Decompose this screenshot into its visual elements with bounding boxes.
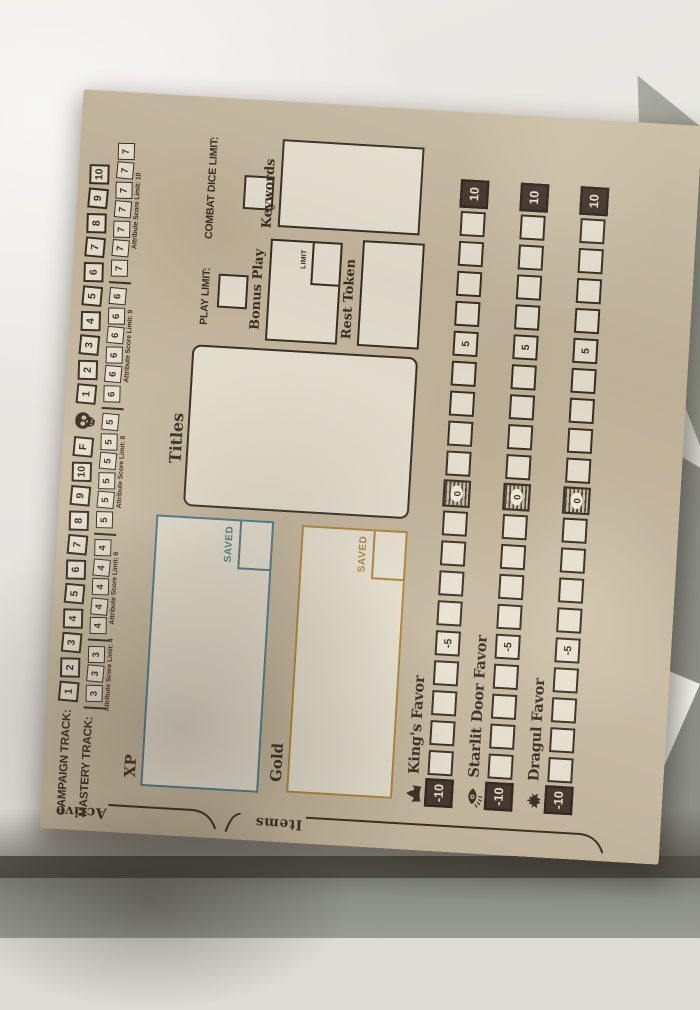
mastery-group-divider — [109, 281, 131, 284]
mastery-group-divider — [102, 407, 124, 410]
favor-box[interactable] — [498, 574, 524, 600]
favor-box[interactable]: -10 — [424, 778, 454, 808]
favor-box[interactable] — [429, 720, 455, 746]
titles-box[interactable] — [183, 344, 418, 519]
favor-box[interactable]: 10 — [459, 179, 489, 209]
favor-box[interactable] — [569, 398, 595, 424]
combat-dice-limit-label: COMBAT DICE LIMIT: — [203, 136, 221, 239]
favor-box[interactable] — [447, 420, 473, 446]
favor-box[interactable] — [489, 724, 515, 750]
favor-zero-badge: 0 — [570, 492, 583, 509]
favor-zero-badge: 0 — [510, 489, 523, 506]
bonus-play-heading: Bonus Play — [248, 248, 268, 330]
favor-box[interactable]: 5 — [572, 338, 598, 364]
tab-active[interactable]: Active — [46, 801, 107, 821]
favor-box[interactable]: 5 — [512, 334, 538, 360]
mastery-box[interactable]: 4 — [92, 559, 110, 577]
favor-box[interactable] — [570, 368, 596, 394]
favor-box[interactable] — [561, 517, 587, 543]
favor-box[interactable] — [433, 660, 459, 686]
favor-box[interactable] — [440, 540, 466, 566]
favor-box[interactable] — [560, 547, 586, 573]
favor-box[interactable] — [442, 510, 468, 536]
favor-box[interactable] — [431, 690, 457, 716]
mastery-box[interactable]: 4 — [90, 598, 108, 616]
favor-box[interactable] — [505, 454, 531, 480]
favor-zero-badge: 0 — [450, 485, 463, 502]
mastery-box[interactable]: 6 — [108, 308, 125, 325]
campaign-track-box[interactable]: 5 — [64, 583, 86, 605]
favor-box[interactable] — [553, 667, 579, 693]
favor-box[interactable] — [458, 241, 484, 267]
xp-box[interactable]: SAVED — [140, 514, 274, 793]
rest-token-box[interactable] — [357, 240, 425, 349]
mastery-group: 555555Attribute Score Limit: 8 — [95, 414, 119, 529]
mastery-box[interactable]: 7 — [116, 162, 134, 180]
gold-heading: Gold — [267, 742, 287, 782]
favor-box[interactable] — [567, 428, 593, 454]
eye-icon — [464, 786, 486, 808]
favor-box[interactable] — [438, 570, 464, 596]
favor-track-boxes: -10-50510 — [545, 188, 607, 813]
favor-box[interactable] — [556, 607, 582, 633]
favor-box[interactable] — [449, 391, 475, 417]
campaign-track-box[interactable]: 10 — [72, 462, 93, 483]
favor-box[interactable]: 0 — [562, 486, 591, 515]
campaign-track-box[interactable]: 6 — [83, 262, 104, 283]
favor-box[interactable] — [579, 218, 605, 244]
campaign-track-box[interactable]: 4 — [63, 608, 84, 629]
favor-box[interactable] — [502, 514, 528, 540]
attribute-score-limit-label: Attribute Score Limit: 8 — [116, 436, 127, 509]
favor-box[interactable]: 0 — [502, 483, 531, 512]
favor-box[interactable] — [454, 301, 480, 327]
favor-box[interactable] — [496, 604, 522, 630]
favor-box[interactable] — [487, 753, 513, 779]
favor-box[interactable] — [565, 458, 591, 484]
favor-box[interactable] — [500, 544, 526, 570]
mastery-box[interactable]: 6 — [103, 386, 120, 403]
mastery-group: 666666Attribute Score Limit: 9 — [102, 288, 126, 403]
favor-box[interactable] — [509, 394, 535, 420]
mastery-box[interactable]: 4 — [94, 540, 111, 557]
campaign-track-box[interactable]: 1 — [75, 384, 97, 406]
mastery-group-divider — [88, 639, 110, 642]
favor-box[interactable]: 10 — [579, 186, 609, 216]
favor-box[interactable] — [574, 308, 600, 334]
campaign-track-box[interactable]: 3 — [78, 335, 100, 357]
attribute-score-limit-label: Attribute Score Limit: 10 — [131, 172, 143, 249]
mastery-box[interactable]: 3 — [88, 646, 105, 663]
campaign-track-box[interactable]: F — [72, 436, 94, 458]
favor-track-label: Dragul Favor — [525, 678, 548, 782]
mastery-box[interactable]: 6 — [106, 327, 124, 345]
attribute-score-limit-label: Attribute Score Limit: 4 — [104, 638, 115, 711]
campaign-track-box[interactable]: 6 — [66, 559, 87, 580]
titles-heading: Titles — [165, 412, 187, 464]
attribute-score-limit-label: Attribute Score Limit: 9 — [123, 310, 134, 383]
gold-saved-box[interactable] — [371, 529, 408, 581]
favor-box[interactable]: -5 — [494, 634, 520, 660]
mastery-box[interactable]: 3 — [85, 685, 102, 702]
favor-box[interactable]: 0 — [442, 479, 471, 508]
mastery-box[interactable]: 3 — [86, 665, 104, 683]
mastery-box[interactable]: 6 — [106, 347, 123, 364]
favor-box[interactable] — [549, 727, 575, 753]
mastery-box[interactable]: 5 — [101, 414, 119, 432]
favor-track-label: King's Favor — [405, 675, 428, 775]
favor-track-label: Starlit Door Favor — [465, 635, 490, 778]
gold-box[interactable]: SAVED — [286, 525, 408, 799]
mastery-box[interactable]: 7 — [111, 260, 128, 277]
favor-box[interactable] — [514, 304, 540, 330]
campaign-track-box[interactable]: 2 — [78, 360, 99, 381]
mastery-box[interactable]: 5 — [96, 511, 113, 528]
bonus-play-limit-box[interactable] — [310, 241, 343, 287]
mastery-box[interactable]: 7 — [115, 182, 132, 199]
favor-box[interactable] — [491, 694, 517, 720]
campaign-track-box[interactable]: 1 — [58, 681, 80, 703]
favor-box[interactable] — [451, 361, 477, 387]
campaign-track-box[interactable]: 8 — [69, 510, 90, 531]
campaign-track-box[interactable]: 7 — [67, 534, 89, 556]
favor-box[interactable]: 5 — [452, 331, 478, 357]
mastery-box[interactable]: 6 — [108, 288, 126, 306]
mastery-box[interactable]: 7 — [114, 201, 132, 219]
gold-saved-label: SAVED — [356, 535, 369, 572]
mastery-box[interactable]: 7 — [113, 221, 130, 238]
favor-box[interactable] — [507, 424, 533, 450]
favor-box[interactable]: -5 — [435, 630, 461, 656]
bonus-play-limit-label: LIMIT — [300, 249, 308, 269]
favor-box[interactable]: -10 — [544, 785, 574, 815]
favor-box[interactable] — [519, 214, 545, 240]
favor-box[interactable]: 10 — [519, 183, 549, 213]
favor-box[interactable] — [456, 271, 482, 297]
favor-box[interactable]: -5 — [554, 637, 580, 663]
campaign-track-label: CAMPAIGN TRACK: — [55, 709, 73, 816]
play-limit-label: PLAY LIMIT: — [198, 267, 213, 325]
mastery-group: 7777777Attribute Score Limit: 10 — [109, 143, 134, 277]
play-limit-box[interactable] — [217, 274, 249, 310]
favor-box[interactable] — [547, 757, 573, 783]
mastery-box[interactable]: 5 — [98, 473, 115, 490]
campaign-track-box[interactable]: 8 — [86, 213, 107, 234]
xp-saved-label: SAVED — [223, 525, 236, 562]
campaign-track-box[interactable]: 2 — [60, 657, 81, 678]
favor-box[interactable] — [427, 750, 453, 776]
rest-token-heading: Rest Token — [339, 258, 359, 339]
mastery-box[interactable]: 5 — [99, 453, 117, 471]
mastery-box[interactable]: 5 — [100, 434, 117, 451]
campaign-track-box[interactable]: 9 — [69, 485, 91, 507]
mastery-box[interactable]: 7 — [111, 240, 129, 258]
xp-saved-box[interactable] — [237, 519, 274, 571]
mastery-box[interactable]: 5 — [96, 491, 114, 509]
favor-box[interactable] — [493, 664, 519, 690]
campaign-track-box[interactable]: 4 — [80, 311, 101, 332]
favor-box[interactable] — [576, 278, 602, 304]
mastery-group-divider — [94, 533, 116, 536]
mastery-box[interactable]: 4 — [92, 579, 109, 596]
favor-box[interactable]: -10 — [484, 782, 514, 812]
crown-icon — [404, 783, 426, 805]
favor-box[interactable] — [551, 697, 577, 723]
mastery-box[interactable]: 7 — [118, 143, 135, 160]
favor-box[interactable] — [577, 248, 603, 274]
mastery-track-label: MASTERY TRACK: — [77, 716, 95, 817]
game-sheet: CAMPAIGN TRACK: 12345678910F 12345678910… — [40, 89, 700, 864]
bonus-play-box[interactable]: LIMIT — [265, 239, 343, 345]
mastery-box[interactable]: 4 — [89, 618, 106, 635]
favor-box[interactable] — [510, 364, 536, 390]
dragon-icon — [523, 790, 545, 812]
tab-items[interactable]: Items — [234, 813, 303, 833]
favor-box[interactable] — [516, 274, 542, 300]
mastery-group: 333Attribute Score Limit: 4 — [84, 646, 105, 702]
favor-box[interactable] — [445, 450, 471, 476]
mastery-box[interactable]: 6 — [104, 366, 122, 384]
campaign-track-box[interactable]: 3 — [61, 632, 83, 654]
campaign-track-box[interactable]: 10 — [89, 164, 110, 185]
keywords-heading: Keywords — [260, 158, 279, 229]
campaign-track-box[interactable]: 9 — [87, 188, 109, 210]
campaign-track-box[interactable]: 7 — [84, 237, 106, 259]
keywords-box[interactable] — [278, 139, 425, 235]
favor-box[interactable] — [558, 577, 584, 603]
mastery-group: 44444Attribute Score Limit: 6 — [88, 540, 111, 635]
xp-heading: XP — [121, 754, 140, 778]
favor-box[interactable] — [518, 244, 544, 270]
attribute-score-limit-label: Attribute Score Limit: 6 — [109, 552, 120, 625]
mastery-group-divider — [84, 706, 106, 709]
campaign-track-box[interactable]: 5 — [81, 286, 103, 308]
favor-box[interactable] — [459, 211, 485, 237]
skull-icon — [71, 407, 99, 435]
favor-box[interactable] — [436, 600, 462, 626]
